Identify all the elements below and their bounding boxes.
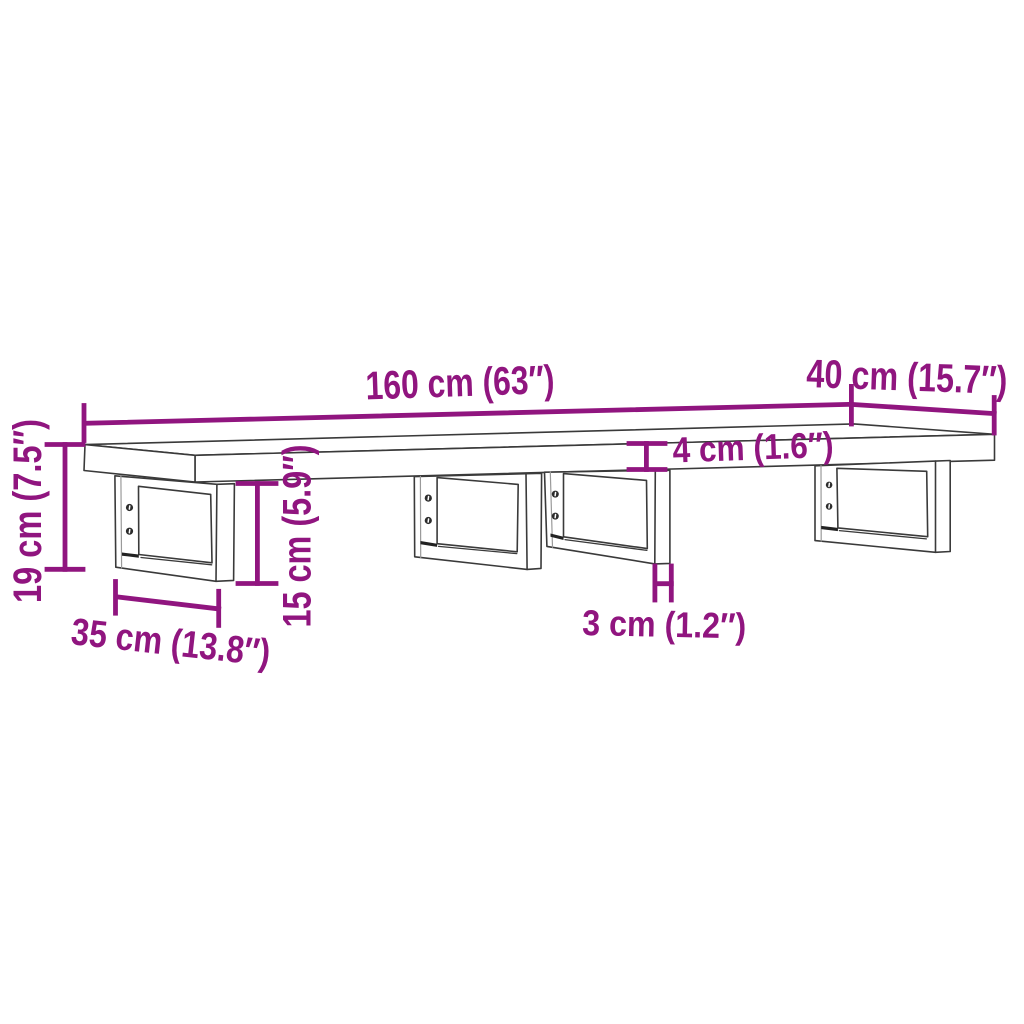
svg-text:3 cm (1.2″): 3 cm (1.2″) <box>582 602 747 646</box>
svg-text:4 cm (1.6″): 4 cm (1.6″) <box>672 424 834 471</box>
svg-text:19 cm (7.5″): 19 cm (7.5″) <box>6 419 50 603</box>
svg-text:15 cm (5.9″): 15 cm (5.9″) <box>276 445 320 628</box>
svg-text:160 cm (63″): 160 cm (63″) <box>365 358 555 409</box>
svg-text:40 cm (15.7″): 40 cm (15.7″) <box>806 352 1008 403</box>
